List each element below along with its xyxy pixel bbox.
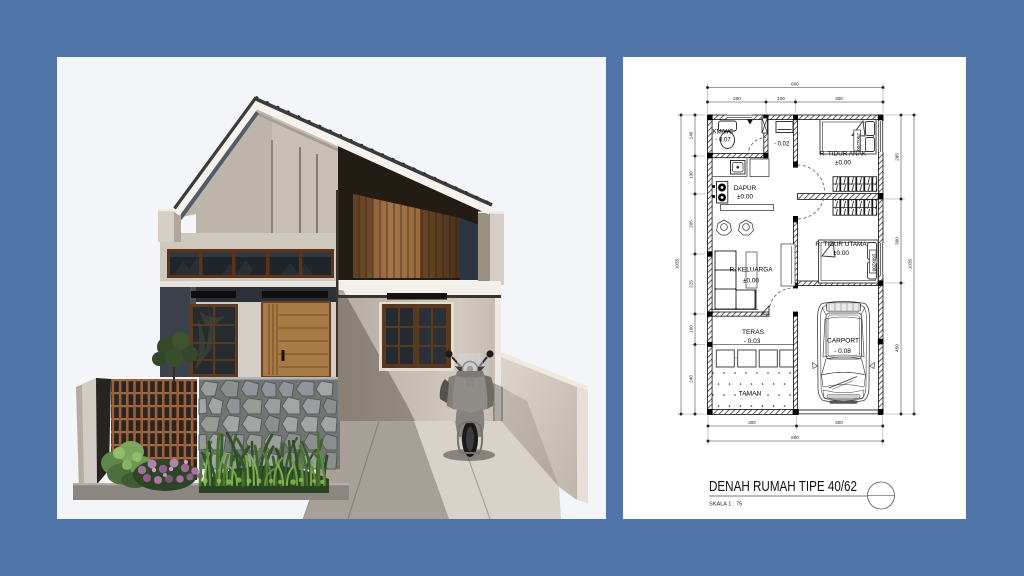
svg-text:100: 100 (777, 96, 785, 101)
svg-text:300: 300 (835, 420, 843, 425)
svg-text:±0.00: ±0.00 (833, 250, 849, 257)
svg-text:- 0.02: - 0.02 (774, 142, 790, 148)
svg-text:- 0.08: - 0.08 (834, 348, 851, 355)
svg-text:200: 200 (733, 96, 741, 101)
svg-text:600: 600 (791, 82, 799, 87)
svg-text:200x200: 200x200 (856, 133, 861, 151)
svg-text:- 0.03: - 0.03 (744, 338, 761, 345)
svg-text:±0.00: ±0.00 (743, 278, 759, 285)
svg-text:±0.00: ±0.00 (737, 194, 753, 201)
svg-text:600: 600 (791, 435, 799, 440)
svg-text:- 0.07: - 0.07 (715, 138, 731, 144)
svg-text:DENAH RUMAH TIPE 40/62: DENAH RUMAH TIPE 40/62 (709, 479, 857, 495)
svg-text:KM/WC: KM/WC (713, 130, 734, 136)
svg-text:CARPORT: CARPORT (827, 338, 859, 345)
svg-text:240: 240 (689, 375, 694, 383)
svg-text:300: 300 (835, 96, 843, 101)
svg-text:300: 300 (748, 420, 756, 425)
svg-text:285: 285 (895, 153, 900, 161)
svg-text:225: 225 (689, 280, 694, 288)
svg-text:160x200: 160x200 (872, 254, 877, 272)
svg-text:130: 130 (689, 171, 694, 179)
svg-text:100: 100 (689, 325, 694, 333)
svg-text:1035: 1035 (908, 258, 913, 269)
svg-text:205: 205 (689, 220, 694, 228)
svg-text:300: 300 (895, 237, 900, 245)
svg-text:±0.00: ±0.00 (835, 160, 851, 167)
svg-text:TERAS: TERAS (742, 329, 765, 336)
svg-text:SKALA 1 : 75: SKALA 1 : 75 (709, 502, 742, 508)
svg-text:1035: 1035 (675, 258, 680, 269)
svg-text:DAPUR: DAPUR (734, 185, 757, 192)
svg-text:450: 450 (895, 344, 900, 352)
svg-text:R. TIDUR ANAK: R. TIDUR ANAK (820, 151, 867, 158)
svg-text:TAMAN: TAMAN (739, 391, 762, 398)
svg-text:R. TIDUR UTAMA: R. TIDUR UTAMA (815, 241, 867, 248)
svg-text:R. KELUARGA: R. KELUARGA (730, 267, 774, 274)
svg-text:140: 140 (689, 131, 694, 139)
